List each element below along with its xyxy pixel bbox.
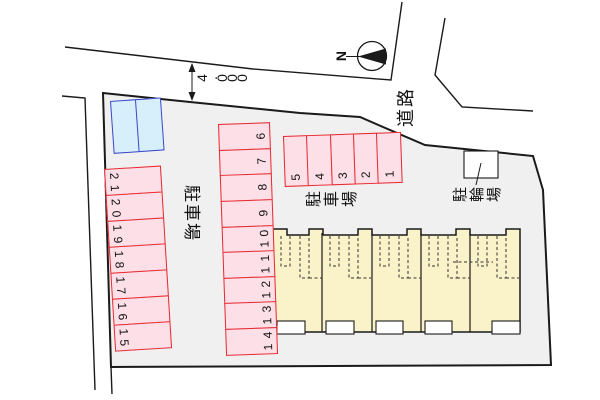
parking-stall: 3 [330, 134, 356, 186]
stall-number: 14 [262, 329, 275, 352]
road-line-right [435, 18, 533, 111]
stall-number: 6 [255, 130, 267, 142]
parking-stall: 12 [223, 276, 276, 305]
stall-number: 20 [109, 196, 122, 219]
stall-number: 11 [260, 252, 273, 275]
stall-number: 18 [112, 248, 125, 271]
north-label: N [333, 51, 349, 61]
stall-number: 16 [115, 300, 128, 323]
stall-number: 2 [361, 169, 373, 181]
stall-number: 12 [260, 278, 273, 301]
parcel-line-bottom-left [111, 367, 112, 394]
parking-stall: 1 [376, 132, 402, 184]
stall-number: 7 [256, 156, 268, 168]
parcel-line-left [62, 96, 95, 390]
parking-stall: 8 [220, 173, 273, 202]
parking-stall: 14 [225, 327, 278, 356]
stall-number: 9 [258, 207, 270, 219]
parking-column-left: 21 20 19 18 17 16 15 [104, 166, 172, 352]
road-label: 道路 [396, 88, 416, 128]
stall-number: 4 [314, 170, 326, 182]
stall-number: 5 [291, 171, 303, 183]
blue-stall-cell [136, 99, 163, 152]
parking-stall: 5 [283, 135, 309, 187]
parking-row-top: 5 4 3 2 1 [283, 132, 403, 187]
north-arrow-icon [346, 42, 387, 71]
parking-stall: 15 [114, 321, 173, 352]
stall-number: 19 [110, 222, 123, 245]
building-outline [273, 229, 520, 332]
parking-stall: 13 [224, 301, 277, 330]
plan-linework [0, 0, 600, 400]
parking-stall: 9 [221, 199, 274, 228]
blue-parking-stall [110, 97, 165, 153]
parking-column-middle: 6 7 8 9 10 11 12 13 14 [218, 122, 278, 356]
bicycle-parking-label: 駐輪場 [452, 186, 503, 203]
road-line-top [65, 2, 402, 80]
stall-number: 17 [113, 274, 126, 297]
stall-number: 8 [257, 181, 269, 193]
building [273, 229, 520, 334]
stall-number: 15 [117, 326, 130, 349]
stall-number: 3 [337, 169, 349, 181]
parking-stall: 7 [219, 148, 272, 177]
parking-stall: 4 [306, 134, 332, 186]
stall-number: 1 [384, 168, 396, 180]
parking-stall: 6 [218, 122, 271, 151]
site-plan: 21 20 19 18 17 16 15 6 7 8 9 10 11 12 13… [0, 0, 600, 400]
stall-number: 21 [107, 170, 120, 193]
parking-label-left: 駐車場 [182, 184, 201, 241]
parking-stall: 11 [222, 250, 275, 279]
parking-stall: 10 [222, 225, 275, 254]
blue-stall-cell [111, 100, 139, 153]
stall-number: 13 [261, 304, 274, 327]
parking-stall: 2 [353, 133, 379, 185]
dimension-label: 4.000 [197, 71, 247, 85]
parking-label-top: 駐車場 [306, 190, 360, 208]
stall-number: 10 [259, 227, 272, 250]
